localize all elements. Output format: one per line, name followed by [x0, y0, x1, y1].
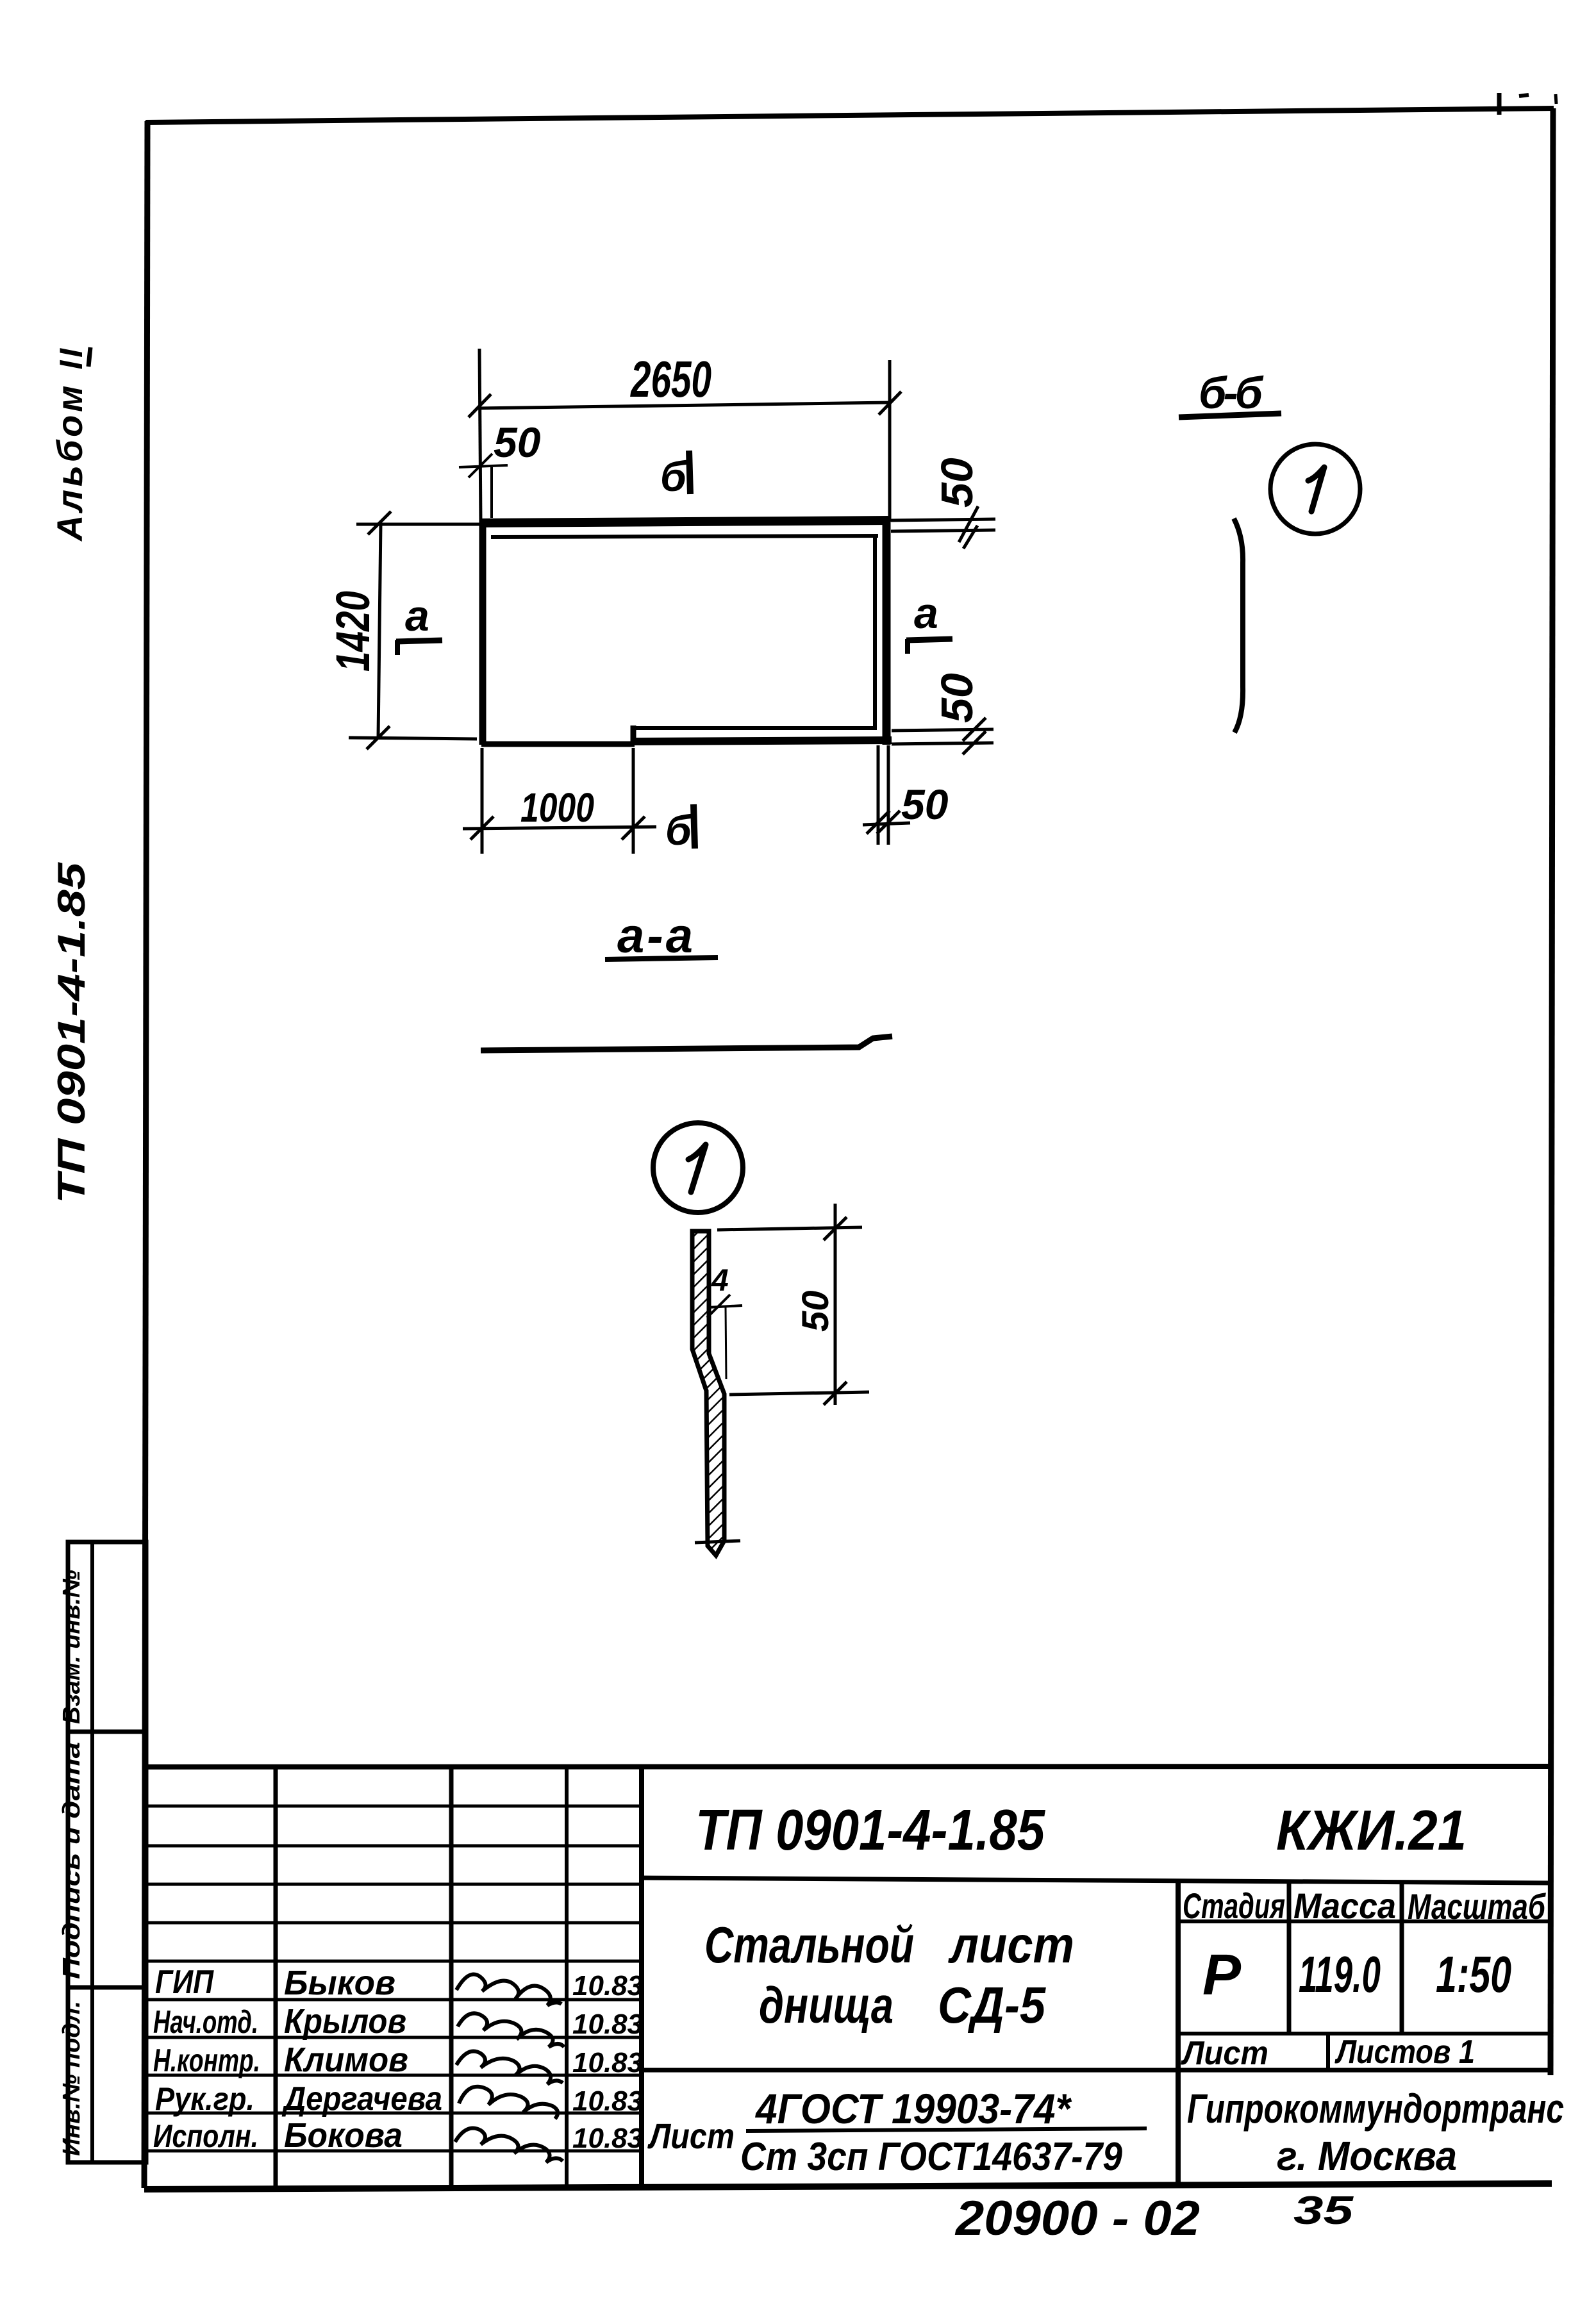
- svg-text:Климов: Климов: [284, 2041, 408, 2079]
- svg-text:б: б: [660, 452, 688, 500]
- svg-text:лист: лист: [947, 1916, 1074, 1973]
- svg-text:1000: 1000: [520, 784, 594, 831]
- svg-text:ТП 0901-4-1.85: ТП 0901-4-1.85: [695, 1798, 1046, 1862]
- svg-text:Ст 3сп ГОСТ14637-79: Ст 3сп ГОСТ14637-79: [740, 2135, 1122, 2179]
- svg-text:2650: 2650: [630, 351, 711, 408]
- svg-text:10.83: 10.83: [572, 1970, 643, 2002]
- svg-text:а: а: [405, 592, 429, 640]
- svg-text:Стадия: Стадия: [1183, 1886, 1285, 1926]
- svg-text:Подпись и дата: Подпись и дата: [58, 1742, 85, 1979]
- svg-text:10.83: 10.83: [572, 2047, 643, 2078]
- svg-text:Листов 1: Листов 1: [1334, 2034, 1475, 2071]
- svg-text:Крылов: Крылов: [284, 2002, 406, 2041]
- svg-text:10.83: 10.83: [572, 2009, 643, 2040]
- svg-text:а: а: [914, 589, 938, 638]
- svg-text:б-б: б-б: [1199, 368, 1264, 418]
- svg-text:Лист: Лист: [1180, 2035, 1268, 2072]
- svg-text:а-а: а-а: [617, 909, 693, 963]
- svg-text:Лист: Лист: [647, 2116, 735, 2156]
- svg-text:Нач.отд.: Нач.отд.: [153, 2004, 258, 2040]
- svg-text:ТП 0901-4-1.85: ТП 0901-4-1.85: [50, 861, 93, 1204]
- svg-text:20900 - 02: 20900 - 02: [954, 2191, 1200, 2246]
- svg-text:4ГОСТ 19903-74*: 4ГОСТ 19903-74*: [754, 2085, 1072, 2132]
- svg-text:Бокова: Бокова: [284, 2116, 403, 2155]
- svg-text:119.0: 119.0: [1299, 1946, 1381, 2003]
- svg-text:Н.контр.: Н.контр.: [153, 2043, 260, 2078]
- svg-text:50: 50: [932, 673, 982, 723]
- svg-text:50: 50: [795, 1290, 836, 1332]
- svg-text:Исполн.: Исполн.: [153, 2118, 258, 2154]
- svg-text:50: 50: [932, 458, 982, 508]
- svg-text:Масса: Масса: [1293, 1886, 1396, 1926]
- svg-text:КЖИ.21: КЖИ.21: [1276, 1798, 1467, 1862]
- svg-text:50: 50: [494, 419, 541, 466]
- svg-text:днища: днища: [759, 1977, 894, 2034]
- svg-text:Инв.№ подл.: Инв.№ подл.: [58, 2001, 85, 2156]
- svg-text:Р: Р: [1202, 1943, 1242, 2007]
- svg-text:Гипрокоммундортранс: Гипрокоммундортранс: [1187, 2085, 1564, 2132]
- svg-text:1:50: 1:50: [1436, 1946, 1511, 2003]
- svg-text:Дергачева: Дергачева: [281, 2080, 442, 2118]
- svg-text:б: б: [665, 806, 693, 854]
- svg-text:Рук.гр.: Рук.гр.: [155, 2081, 254, 2117]
- svg-text:ГИП: ГИП: [155, 1964, 214, 2001]
- svg-text:г. Москва: г. Москва: [1277, 2133, 1457, 2179]
- svg-text:СД-5: СД-5: [938, 1977, 1046, 2034]
- svg-text:10.83: 10.83: [572, 2085, 643, 2117]
- svg-text:Стальной: Стальной: [704, 1916, 914, 1973]
- svg-text:35: 35: [1293, 2189, 1354, 2233]
- svg-text:4: 4: [711, 1264, 729, 1298]
- svg-text:Взам. инв.№: Взам. инв.№: [58, 1570, 85, 1724]
- svg-text:1420: 1420: [326, 591, 379, 672]
- svg-text:50: 50: [901, 781, 949, 828]
- svg-text:Масштаб: Масштаб: [1408, 1886, 1546, 1927]
- svg-text:Быков: Быков: [284, 1964, 395, 2002]
- svg-text:10.83: 10.83: [572, 2123, 643, 2154]
